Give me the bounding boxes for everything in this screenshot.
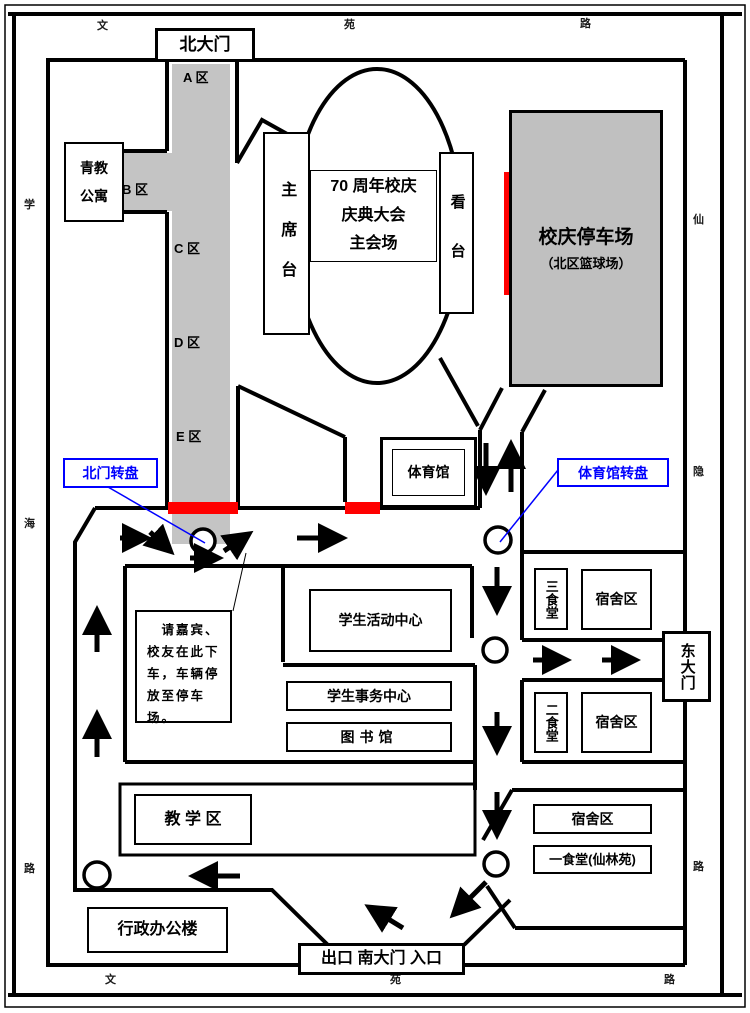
- street-right-char-3: 路: [693, 858, 704, 874]
- street-left-char-3: 路: [24, 860, 35, 876]
- parking-title: 校庆停车场: [538, 225, 633, 251]
- dorm-area-northeast: 宿舍区: [581, 569, 652, 630]
- gym-roundabout-callout: 体育馆转盘: [557, 458, 669, 487]
- teaching-area: 教 学 区: [134, 794, 252, 845]
- rostrum: 主席台: [263, 132, 310, 335]
- main-venue-label: 70 周年校庆 庆典大会 主会场: [310, 170, 437, 262]
- admin-office-building: 行政办公楼: [87, 907, 228, 953]
- zone-c-label: C 区: [174, 238, 200, 257]
- library: 图书馆: [286, 722, 452, 752]
- zone-a-label: A 区: [183, 67, 209, 86]
- street-left-char-2: 海: [24, 515, 35, 531]
- street-bottom-char-3: 路: [664, 971, 675, 987]
- student-activity-center: 学生活动中心: [309, 589, 452, 652]
- gymnasium: 体育馆: [380, 437, 477, 508]
- campus-map: 文 苑 路 文 苑 路 学 海 路 仙 隐 路 北大门 东大门 出口 南大门 入…: [0, 0, 750, 1013]
- south-gate-exit-entrance: 出口 南大门 入口: [298, 943, 465, 975]
- street-right-char-1: 仙: [693, 211, 704, 227]
- north-gate-roundabout-callout: 北门转盘: [63, 458, 158, 488]
- east-gate: 东大门: [662, 631, 711, 702]
- drop-off-note: 请嘉宾、 校友在此下 车，车辆停 放至停车 场。: [135, 610, 232, 723]
- street-top-char-1: 文: [97, 17, 108, 33]
- zone-b-label: B 区: [122, 179, 148, 198]
- qingjiao-apartment: 青教 公寓: [64, 142, 124, 222]
- street-top-char-3: 路: [580, 15, 591, 31]
- north-gate: 北大门: [155, 28, 255, 62]
- canteen-2: 二食堂: [534, 692, 568, 753]
- dorm-area-east: 宿舍区: [581, 692, 652, 753]
- dorm-area-southeast: 宿舍区: [533, 804, 652, 834]
- parking-subtitle: （北区篮球场）: [540, 255, 631, 273]
- street-right-char-2: 隐: [693, 463, 704, 479]
- student-affairs-center: 学生事务中心: [286, 681, 452, 711]
- street-bottom-char-1: 文: [105, 971, 116, 987]
- zone-d-label: D 区: [174, 332, 200, 351]
- anniversary-parking-lot: 校庆停车场 （北区篮球场）: [509, 110, 663, 387]
- street-left-char-1: 学: [24, 196, 35, 212]
- gymnasium-label: 体育馆: [392, 449, 465, 496]
- canteen-1-xianlinyuan: 一食堂(仙林苑): [533, 845, 652, 874]
- street-top-char-2: 苑: [344, 16, 355, 32]
- zone-e-label: E 区: [176, 426, 201, 445]
- canteen-3: 三食堂: [534, 568, 568, 630]
- grandstand: 看台: [439, 152, 474, 314]
